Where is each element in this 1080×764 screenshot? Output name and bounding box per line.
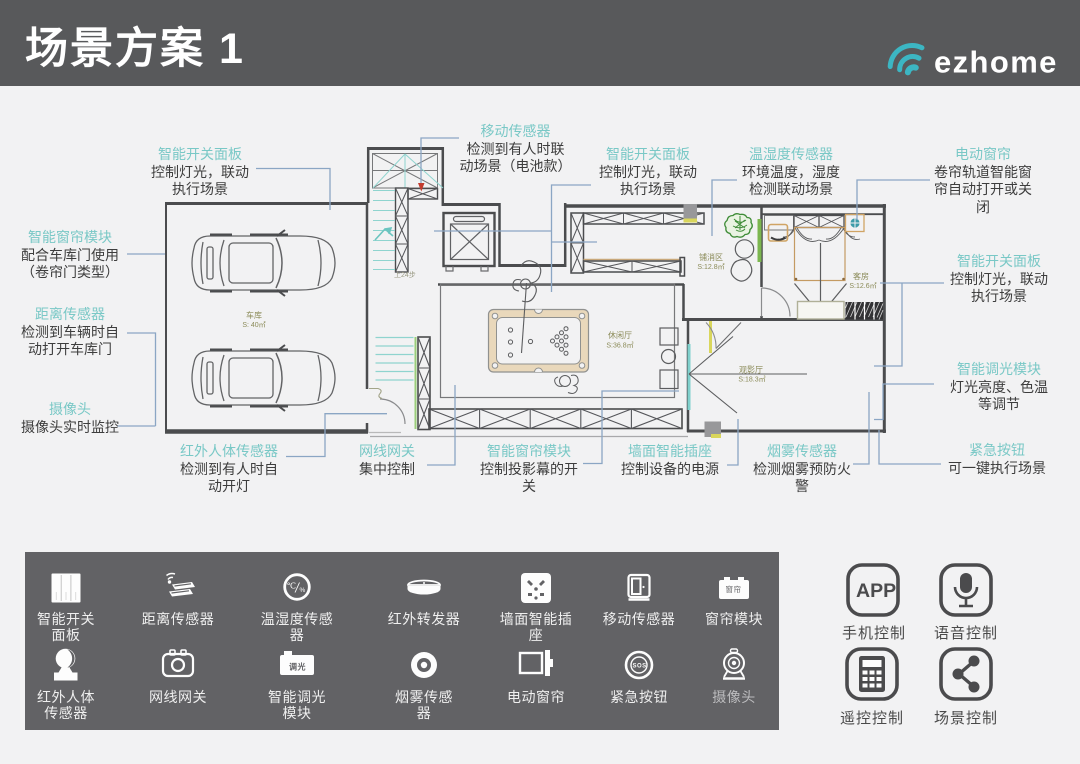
svg-text:℃: ℃ [287,581,297,591]
svg-text:S: 40㎡: S: 40㎡ [242,321,265,329]
svg-text:调光: 调光 [289,662,306,672]
svg-text:休闲厅: 休闲厅 [608,330,632,340]
svg-text:上24步: 上24步 [394,270,416,279]
svg-text:S:36.8㎡: S:36.8㎡ [606,342,633,350]
svg-text:S:18.3㎡: S:18.3㎡ [738,376,765,384]
svg-text:观影厅: 观影厅 [739,365,763,375]
svg-text:车库: 车库 [246,310,262,320]
svg-text:客房: 客房 [853,271,869,281]
svg-text:铺消区: 铺消区 [699,252,723,262]
svg-text:SOS: SOS [633,664,647,670]
svg-text:%: % [300,587,306,594]
svg-text:S:12.6㎡: S:12.6㎡ [849,282,876,290]
svg-text:APP: APP [856,580,896,602]
svg-text:S:12.8㎡: S:12.8㎡ [697,263,724,271]
svg-text:窗帘: 窗帘 [726,584,742,594]
